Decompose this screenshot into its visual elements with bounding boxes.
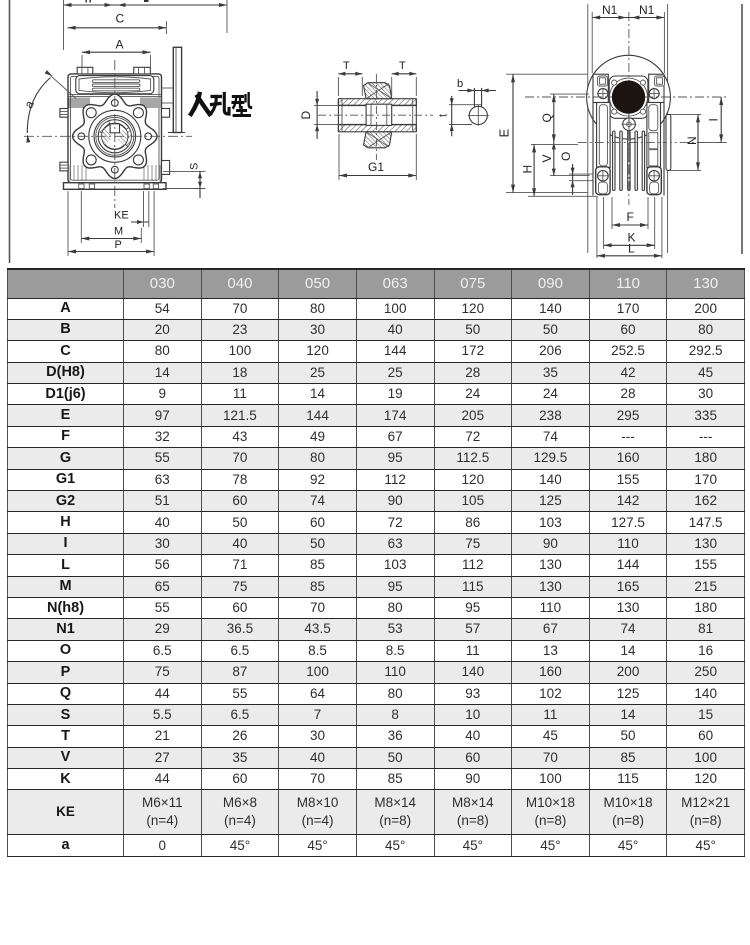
svg-text:N1: N1: [602, 3, 618, 17]
svg-text:t: t: [438, 114, 450, 117]
svg-text:N1: N1: [639, 3, 655, 17]
svg-text:T: T: [343, 60, 350, 72]
svg-text:F: F: [627, 210, 634, 224]
svg-text:L: L: [628, 242, 635, 256]
svg-text:M: M: [114, 226, 123, 238]
svg-text:b: b: [457, 78, 463, 90]
svg-text:N: N: [685, 136, 699, 145]
svg-text:A: A: [116, 38, 124, 52]
svg-text:KE: KE: [114, 210, 129, 222]
svg-text:T: T: [399, 60, 406, 72]
svg-text:V: V: [540, 154, 554, 162]
svg-text:D: D: [299, 111, 313, 120]
svg-text:S: S: [189, 163, 201, 170]
svg-text:G1: G1: [368, 160, 384, 174]
svg-text:C: C: [116, 12, 125, 26]
svg-text:I: I: [706, 118, 720, 121]
svg-text:H: H: [521, 165, 535, 174]
svg-text:O: O: [559, 152, 573, 161]
svg-text:Q: Q: [540, 113, 554, 122]
svg-text:P: P: [115, 239, 122, 251]
svg-text:E: E: [497, 129, 512, 138]
